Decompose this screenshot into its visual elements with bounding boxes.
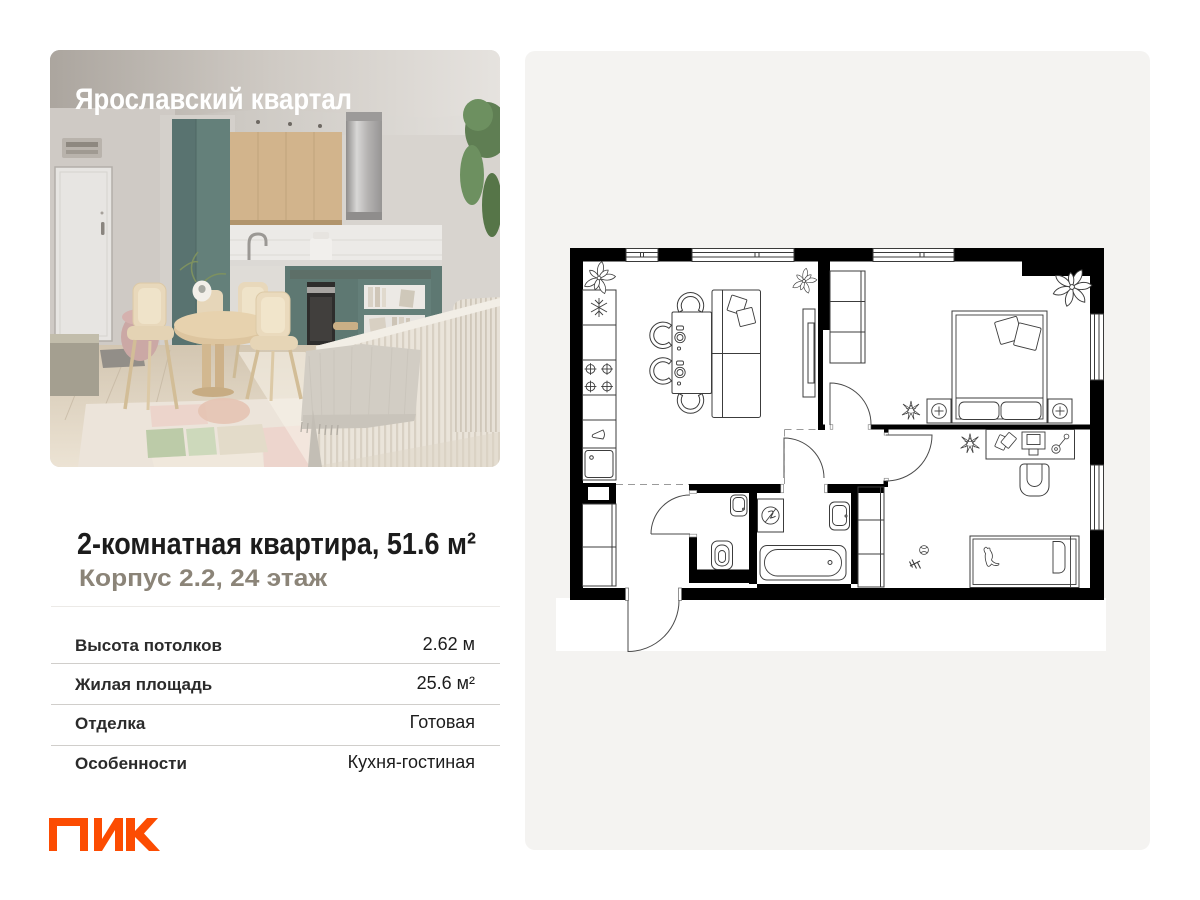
- svg-text:Отделка: Отделка: [75, 714, 146, 733]
- svg-text:25.6 м²: 25.6 м²: [417, 673, 475, 693]
- svg-text:Жилая площадь: Жилая площадь: [74, 675, 212, 694]
- svg-text:2.62 м: 2.62 м: [423, 634, 475, 654]
- svg-text:Кухня-гостиная: Кухня-гостиная: [348, 752, 475, 772]
- svg-text:Высота потолков: Высота потолков: [75, 636, 222, 655]
- svg-text:Ярославский квартал: Ярославский квартал: [75, 83, 352, 116]
- svg-text:Корпус 2.2, 24 этаж: Корпус 2.2, 24 этаж: [79, 565, 328, 592]
- svg-text:Особенности: Особенности: [75, 754, 187, 773]
- svg-text:Готовая: Готовая: [410, 712, 475, 732]
- svg-text:2-комнатная квартира, 51.6 м²: 2-комнатная квартира, 51.6 м²: [77, 526, 476, 561]
